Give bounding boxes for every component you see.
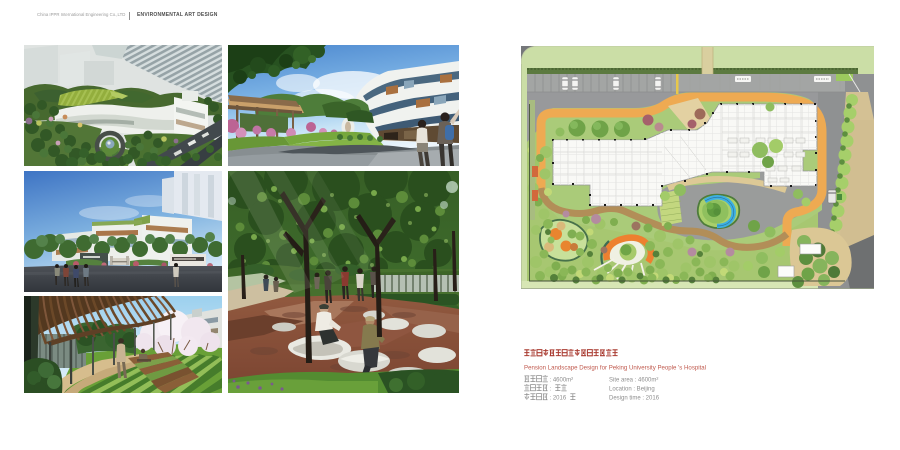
svg-text::: : xyxy=(550,387,552,393)
svg-text:Site area : 4600m²: Site area : 4600m² xyxy=(609,378,658,384)
svg-text:: 4600m²: : 4600m² xyxy=(550,378,574,384)
svg-text:Pension Landscape Design for P: Pension Landscape Design for Peking Univ… xyxy=(524,365,706,372)
svg-text:Location : Beijing: Location : Beijing xyxy=(609,387,655,393)
svg-text:Design time : 2016: Design time : 2016 xyxy=(609,396,660,402)
svg-text:: 2016: : 2016 xyxy=(550,396,567,402)
